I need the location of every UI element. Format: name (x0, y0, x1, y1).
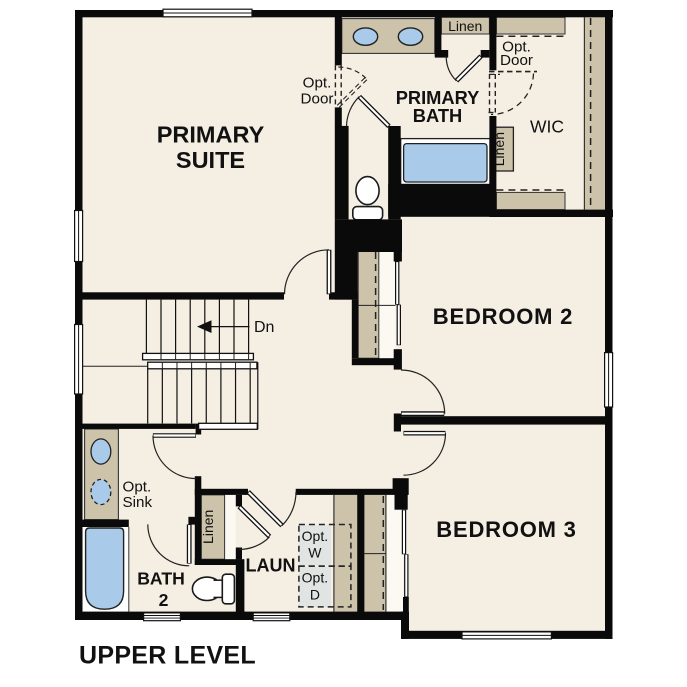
svg-text:Opt.: Opt. (302, 528, 328, 544)
svg-text:PRIMARY: PRIMARY (157, 121, 265, 147)
svg-text:Linen: Linen (448, 18, 482, 34)
svg-text:Opt.: Opt. (123, 479, 152, 496)
svg-text:Dn: Dn (254, 319, 274, 336)
svg-text:WIC: WIC (530, 117, 564, 137)
svg-text:Linen: Linen (200, 510, 216, 544)
svg-text:Door: Door (301, 91, 334, 108)
svg-text:SUITE: SUITE (176, 147, 245, 173)
svg-text:D: D (310, 587, 320, 603)
svg-text:LAUN: LAUN (246, 556, 296, 576)
svg-text:BEDROOM 3: BEDROOM 3 (436, 517, 576, 542)
svg-text:BEDROOM 2: BEDROOM 2 (433, 304, 573, 329)
svg-text:Opt.: Opt. (302, 570, 328, 586)
svg-text:BATH: BATH (413, 105, 462, 126)
svg-text:UPPER LEVEL: UPPER LEVEL (79, 642, 256, 670)
svg-text:Door: Door (500, 52, 533, 69)
svg-text:BATH: BATH (137, 569, 185, 589)
svg-text:Opt.: Opt. (303, 75, 332, 92)
svg-text:2: 2 (159, 590, 169, 610)
svg-text:Sink: Sink (123, 494, 153, 511)
svg-text:W: W (308, 545, 322, 561)
